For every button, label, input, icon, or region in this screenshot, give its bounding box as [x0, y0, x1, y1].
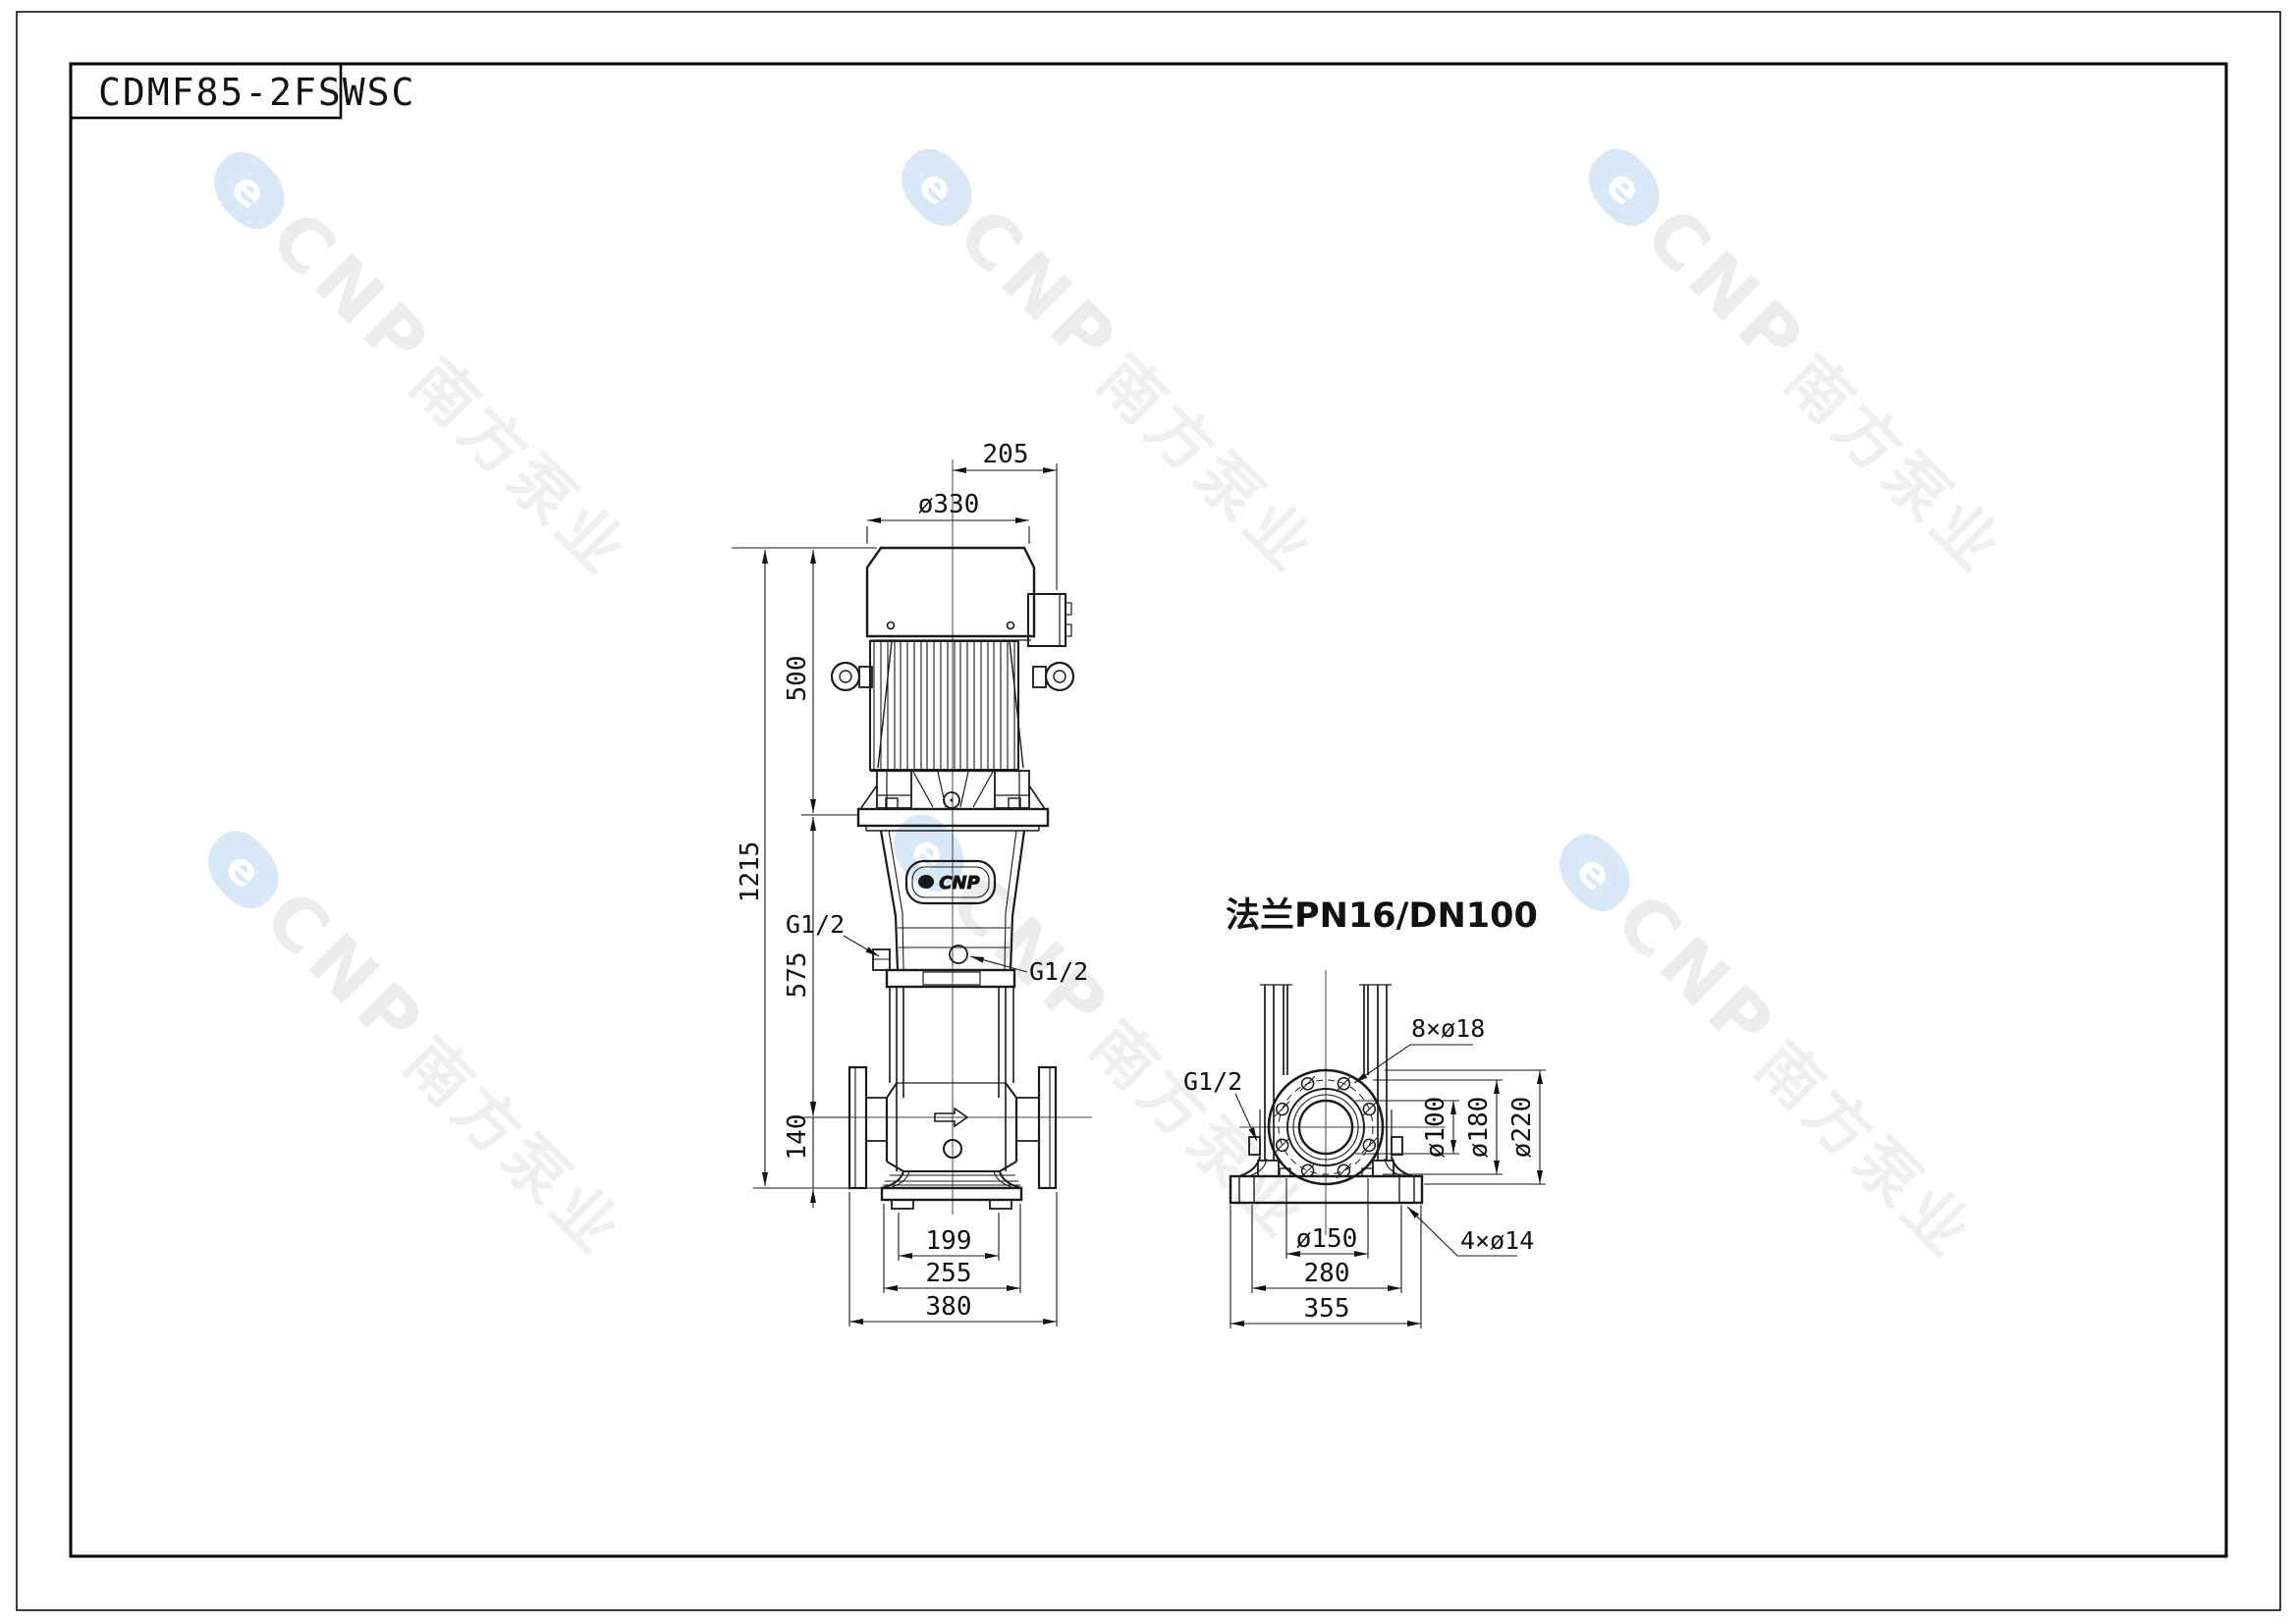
badge-logo-glyph: e [923, 878, 930, 889]
dim-330: ø330 [918, 490, 980, 519]
label-g12-left: G1/2 [786, 910, 845, 939]
pipe-flange-left [849, 1067, 887, 1188]
dim-140: 140 [783, 1114, 812, 1161]
pipe-flange-right [1016, 1067, 1056, 1188]
flange-view-title: 法兰PN16/DN100 [1226, 896, 1538, 936]
label-4x14: 4×ø14 [1460, 1226, 1534, 1255]
dim-280: 280 [1304, 1259, 1350, 1288]
dim-180: ø180 [1464, 1097, 1494, 1159]
stage-column [890, 987, 1013, 1171]
label-g12-right: G1/2 [1029, 957, 1088, 986]
flange-view: 法兰PN16/DN100 [1183, 896, 1546, 1328]
badge-brand: CNP [939, 873, 979, 893]
dim-199: 199 [926, 1226, 972, 1256]
dim-500: 500 [783, 656, 812, 702]
dim-380: 380 [926, 1292, 972, 1322]
port-flange-plate [887, 970, 1014, 987]
motor-fin-block [870, 641, 1023, 771]
dim-255: 255 [926, 1259, 972, 1288]
lifting-eye-left [832, 663, 872, 690]
dim-1215: 1215 [736, 841, 765, 903]
dim-355: 355 [1304, 1294, 1350, 1324]
dim-100: ø100 [1421, 1097, 1450, 1159]
drawing-page: e CNP 南方泵业 e CNP 南方泵业 e CNP 南方泵业 e CNP 南… [0, 0, 2296, 1623]
port-boss-left [1249, 1137, 1260, 1155]
page-border [17, 12, 2280, 1610]
side-view: e CNP [732, 440, 1092, 1326]
port-boss-right [1392, 1137, 1402, 1155]
motor-fan-cover [867, 548, 1034, 640]
technical-drawing: CDMF85-2FSWSC [0, 0, 2296, 1623]
dim-205: 205 [983, 440, 1029, 469]
lifting-eye-right [1033, 663, 1073, 690]
suction-chamber [887, 1083, 1016, 1171]
pump-head: e CNP [873, 831, 1024, 970]
dim-575: 575 [783, 952, 812, 999]
dim-220: ø220 [1507, 1097, 1537, 1159]
cnp-badge: e CNP [906, 861, 995, 903]
label-g12-flange: G1/2 [1183, 1067, 1242, 1096]
pump-base [882, 1171, 1021, 1209]
dim-150: ø150 [1296, 1224, 1358, 1254]
drawing-frame [71, 64, 2226, 1556]
page-title: CDMF85-2FSWSC [98, 71, 415, 114]
label-8x18: 8×ø18 [1411, 1014, 1485, 1043]
